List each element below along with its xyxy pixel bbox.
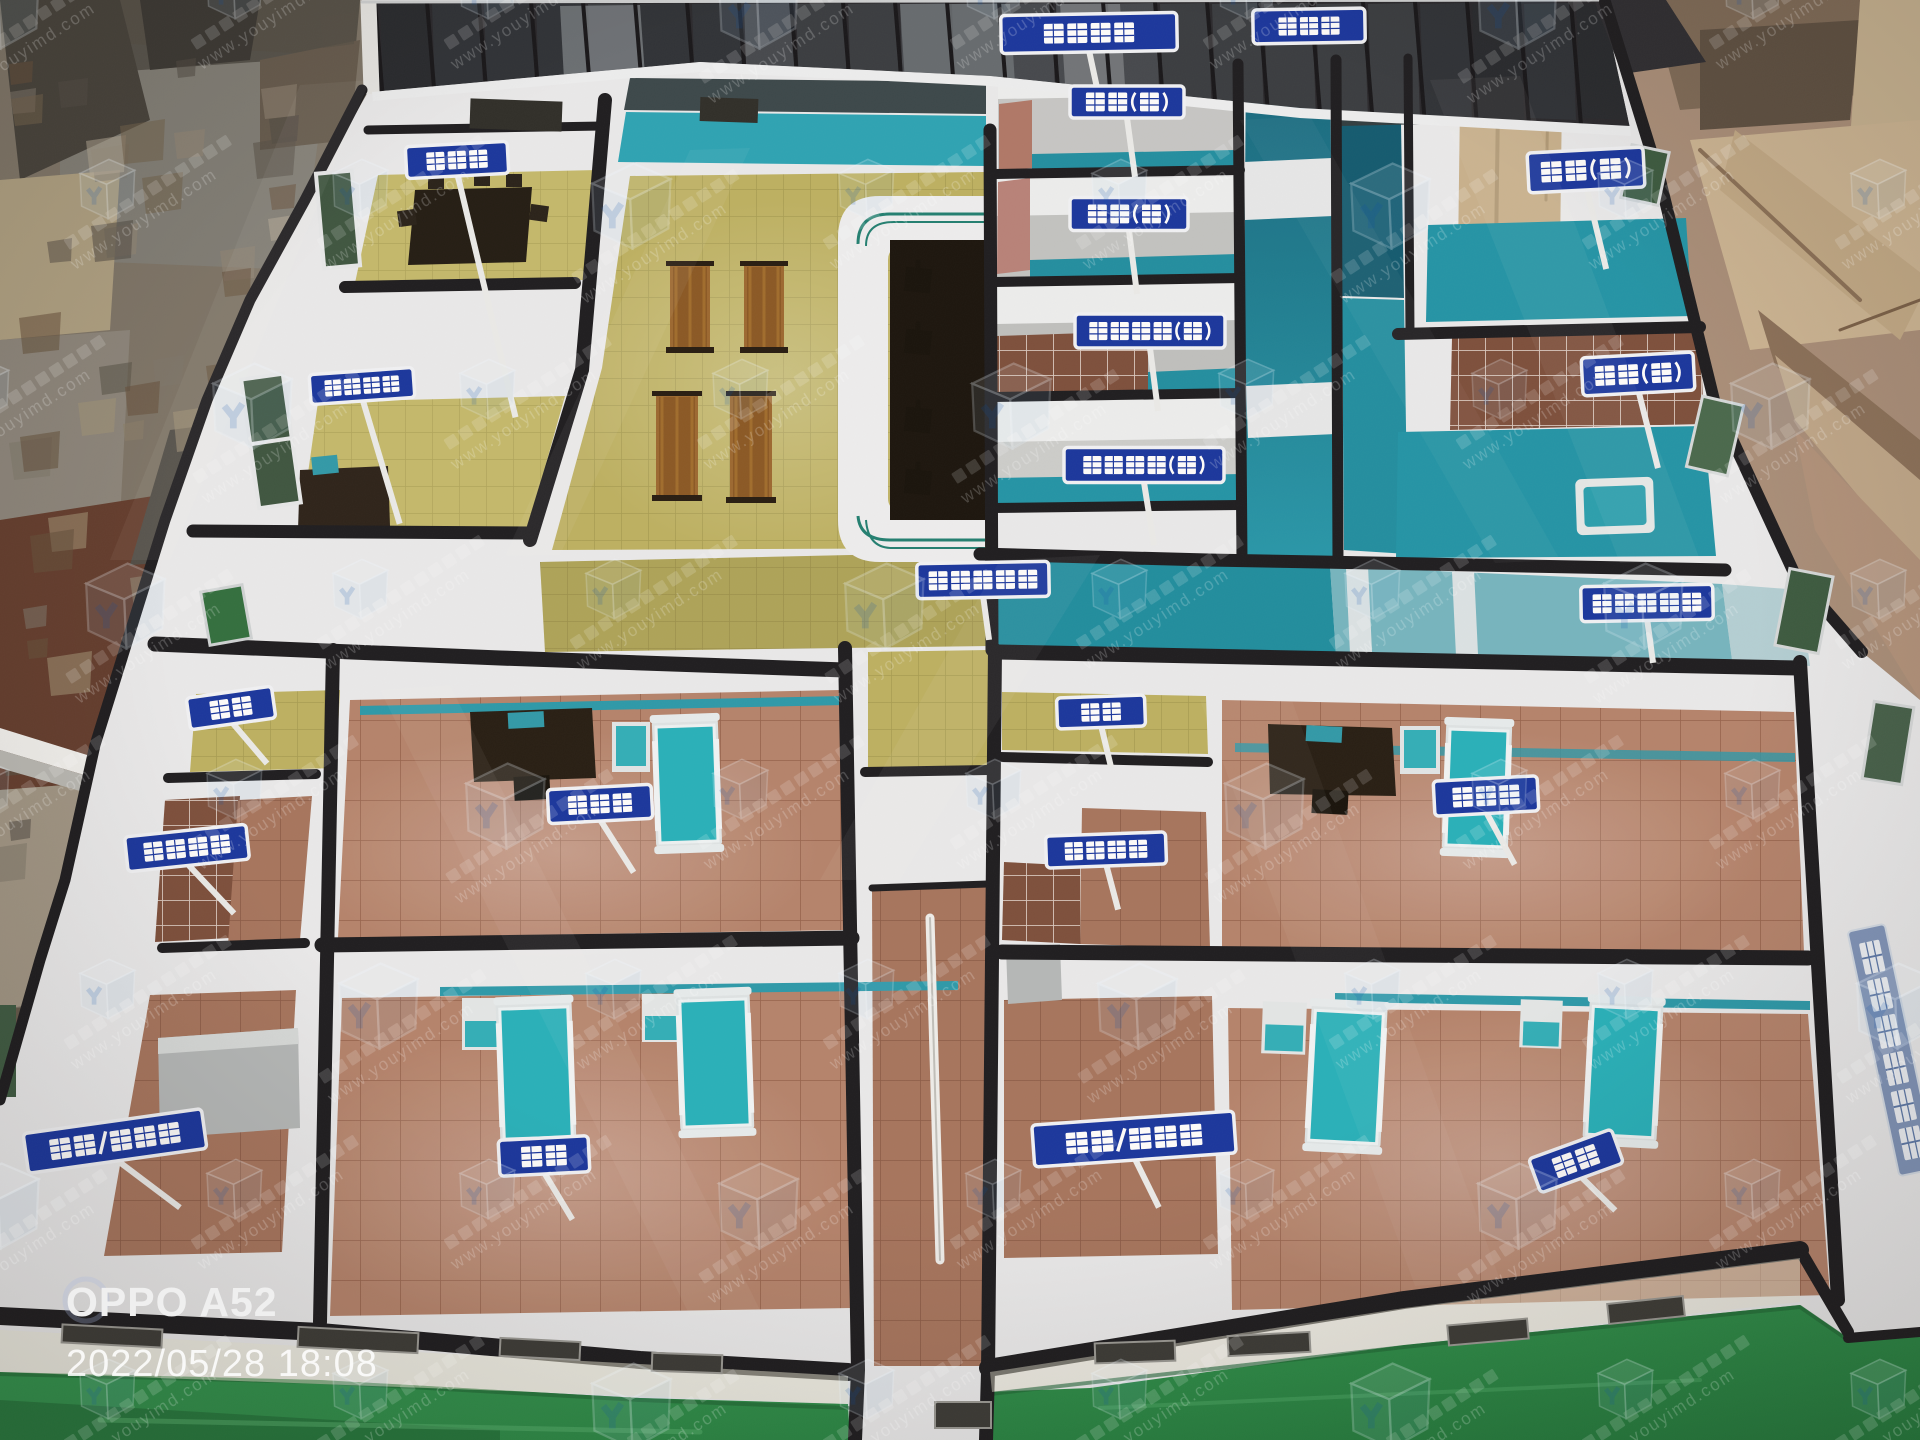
svg-text:OPPO A52: OPPO A52 — [66, 1279, 278, 1325]
svg-text:2022/05/28 18:08: 2022/05/28 18:08 — [66, 1343, 378, 1385]
